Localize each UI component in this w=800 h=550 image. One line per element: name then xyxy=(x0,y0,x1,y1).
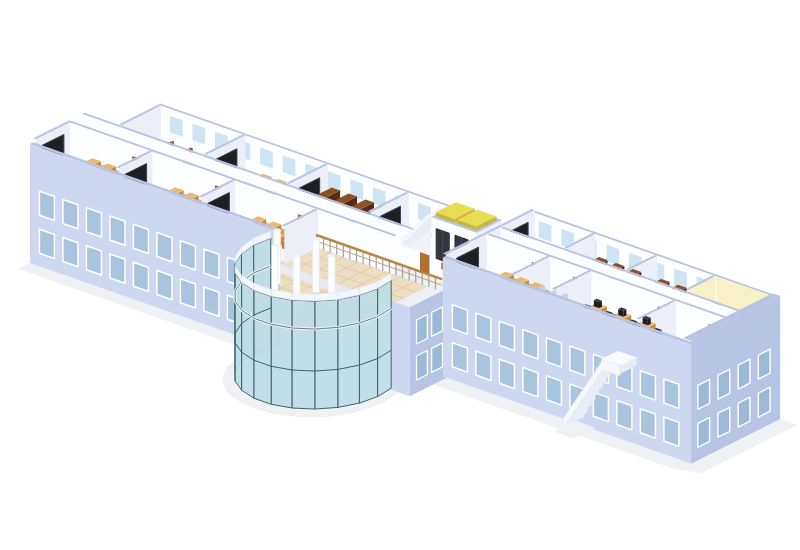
isometric-school-building xyxy=(0,0,800,550)
building-rendering xyxy=(0,0,800,550)
